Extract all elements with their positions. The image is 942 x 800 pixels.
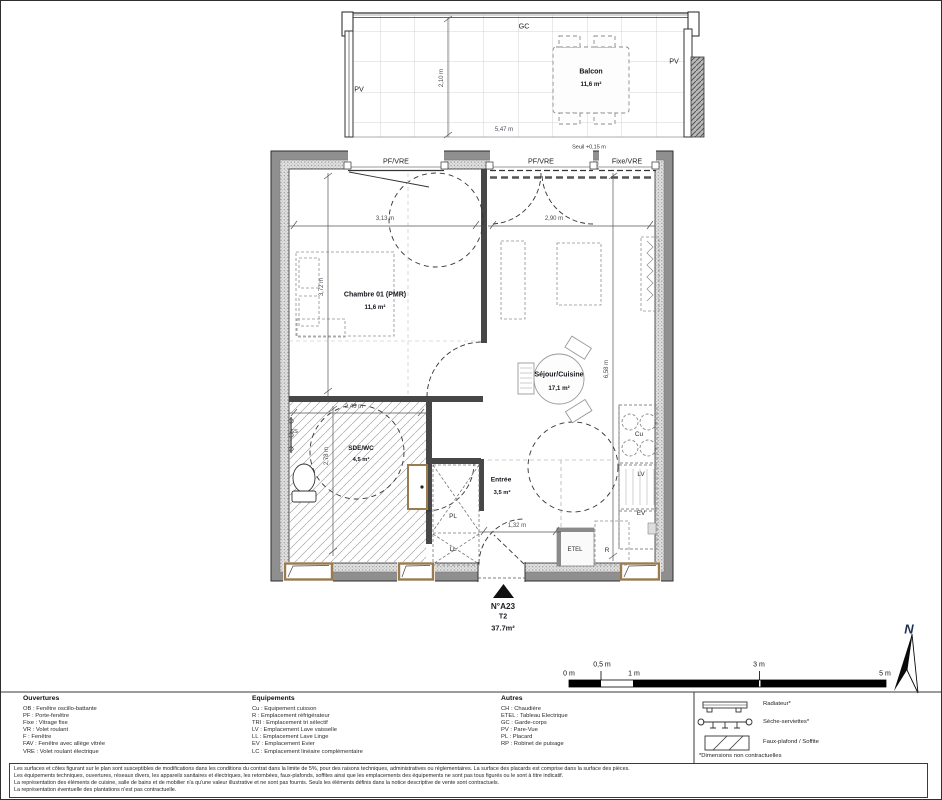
legend-ouvertures-title: Ouvertures	[23, 695, 105, 702]
legend-item: PL : Placard	[501, 734, 568, 741]
legend-item: FAV : Fenêtre avec allège vitrée	[23, 741, 105, 748]
sejour-height-dim: 6,58 m	[604, 360, 610, 378]
floorplan-linework	[1, 1, 942, 800]
chambre-width-dim: 3,13 m	[376, 216, 394, 222]
sejour-area: 17,1 m²	[548, 386, 569, 392]
pv-right-label: PV	[669, 57, 679, 64]
balcony-name: Balcon	[579, 69, 602, 76]
window-label-3: Fixe/VRE	[612, 157, 642, 164]
disclaimer-box: Les surfaces et côtes figurant sur le pl…	[9, 763, 928, 798]
sde-name: SDE/WC	[348, 446, 374, 452]
seuil-label: Seuil +0,15 m	[572, 145, 606, 151]
legend-item: LV : Emplacement Lave vaisselle	[252, 727, 363, 734]
legend-item: R : Emplacement réfrigérateur	[252, 713, 363, 720]
legend-autres-title: Autres	[501, 695, 568, 702]
chambre-area: 11,6 m²	[365, 305, 386, 311]
legend-item: RP : Robinet de puisage	[501, 741, 568, 748]
balcony-area	[342, 12, 704, 162]
scale-0: 0 m	[563, 671, 575, 678]
scale-5: 5 m	[879, 671, 891, 678]
scale-1: 1 m	[628, 671, 640, 678]
radiator-icon	[703, 702, 747, 712]
scale-3: 3 m	[753, 662, 765, 669]
balcony-width-dim: 5,47 m	[495, 127, 513, 133]
chambre-name: Chambre 01 (PMR)	[344, 292, 406, 299]
sde-height-dim: 2,78 m	[324, 447, 330, 465]
window-label-2: PF/VRE	[528, 157, 554, 164]
legend-item: LC : Emplacement linéaire complémentaire	[252, 749, 363, 756]
legend-item: PV : Pare-Vue	[501, 727, 568, 734]
legend-item: GC : Garde-corps	[501, 720, 568, 727]
lot-type: T2	[499, 614, 507, 621]
legend-item: LL : Emplacement Lave Linge	[252, 734, 363, 741]
legend-item: VRE : Volet roulant électrique	[23, 749, 105, 756]
disclaimer-line: La représentation éventuelle des plantat…	[14, 787, 923, 794]
ss-mark: SS	[290, 430, 298, 436]
towel-dryer-icon	[698, 719, 752, 728]
disclaimer-line: Les équipements techniques, ouvertures, …	[14, 773, 923, 780]
legend-item: ETEL : Tableau Electrique	[501, 713, 568, 720]
sejour-name: Séjour/Cuisine	[534, 372, 583, 379]
north-arrow-icon	[894, 634, 918, 693]
entree-name: Entrée	[491, 478, 512, 485]
floorplan-page: GC PV PV Balcon 11,6 m² 2,10 m 5,47 m Se…	[0, 0, 942, 800]
legend-item: OB : Fenêtre oscillo-battante	[23, 706, 105, 713]
ll-mark: LL	[449, 547, 456, 553]
scale-05: 0,5 m	[593, 662, 611, 669]
legend-item: VR : Volet roulant	[23, 727, 105, 734]
dimensions-note: *Dimensions non contractuelles	[699, 754, 782, 760]
ev-mark: EV	[637, 511, 646, 517]
disclaimer-line: La représentation des éléments de cuisin…	[14, 780, 923, 787]
entree-width-dim: 1,32 m	[508, 523, 526, 529]
legend-item: CH : Chaudière	[501, 706, 568, 713]
chambre-height-dim: 3,72 m	[319, 278, 325, 296]
cu-mark: Cu	[635, 432, 643, 438]
legend-item: Cu : Equipement cuisson	[252, 706, 363, 713]
sde-area: 4,5 m²	[353, 458, 370, 464]
legend-equipements-title: Equipements	[252, 695, 363, 702]
lot-area: 37.7m²	[491, 624, 514, 631]
lot-number: N°A23	[491, 603, 515, 611]
entree-area: 3,5 m²	[494, 491, 511, 497]
legend-equipements: Equipements Cu : Equipement cuisson R : …	[252, 695, 363, 756]
radiator-label: Radiateur*	[763, 702, 791, 708]
scale-bar	[569, 671, 886, 687]
entrance-arrow	[493, 584, 514, 598]
pl-mark: PL	[449, 514, 457, 520]
gc-label: GC	[519, 22, 530, 29]
etel-mark: ETEL	[567, 547, 582, 553]
disclaimer-line: Les surfaces et côtes figurant sur le pl…	[14, 766, 923, 773]
legend-item: F : Fenêtre	[23, 734, 105, 741]
sejour-width-dim: 2,90 m	[545, 216, 563, 222]
towel-dryer-label: Sèche-serviettes*	[763, 720, 809, 726]
soffit-label: Faux-plafond / Soffite	[763, 740, 819, 746]
legend-item: TRI : Emplacement tri sélectif	[252, 720, 363, 727]
r-mark: R	[605, 548, 610, 554]
legend-autres: Autres CH : Chaudière ETEL : Tableau Ele…	[501, 695, 568, 749]
legend-ouvertures: Ouvertures OB : Fenêtre oscillo-battante…	[23, 695, 105, 756]
north-label: N	[904, 623, 913, 636]
sde-width-dim: 2,46 m	[345, 404, 363, 410]
pv-left-label: PV	[354, 85, 364, 92]
legend-item: EV : Emplacement Evier	[252, 741, 363, 748]
soffit-hatch-icon	[705, 736, 749, 750]
legend-item: Fixe : Vitrage fixe	[23, 720, 105, 727]
balcony-area: 11,6 m²	[581, 82, 602, 88]
legend-item: PF : Porte-fenêtre	[23, 713, 105, 720]
window-label-1: PF/VRE	[383, 157, 409, 164]
lv-mark: LV	[637, 472, 644, 478]
balcony-depth-dim: 2,10 m	[439, 69, 445, 87]
